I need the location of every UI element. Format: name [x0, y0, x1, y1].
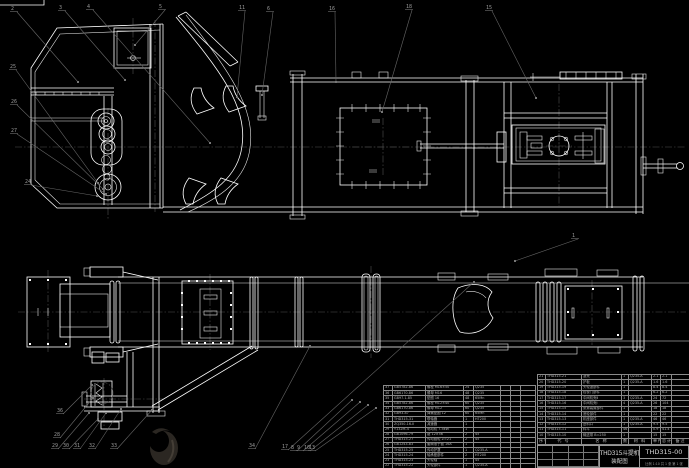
svg-text:8: 8: [291, 445, 294, 451]
svg-text:26: 26: [11, 99, 17, 105]
svg-text:33: 33: [111, 443, 117, 449]
bom-table-standard-parts: 37GB5782-86螺栓 M16×5024Q23536GB6170-86螺母 …: [383, 385, 536, 468]
svg-text:18: 18: [406, 4, 412, 10]
tension-bolt: [256, 86, 268, 120]
title-block: THD315斗提机 装配图 THD315-00 比例 1:10 共 1 张 第 …: [537, 445, 689, 468]
svg-text:30: 30: [63, 443, 69, 449]
inspection-door-plan: [182, 281, 233, 344]
svg-text:11: 11: [239, 5, 245, 11]
svg-text:27: 27: [11, 128, 17, 134]
svg-text:25: 25: [10, 64, 16, 70]
watermark-blob: [149, 428, 178, 465]
frame-corner: [0, 0, 44, 5]
svg-text:6: 6: [267, 6, 270, 12]
signature-grid: [538, 446, 600, 467]
svg-text:28: 28: [54, 432, 60, 438]
buckets: [183, 86, 246, 204]
drive-unit-plan: [82, 352, 160, 429]
svg-text:32: 32: [89, 443, 95, 449]
svg-text:17: 17: [282, 444, 288, 450]
sheet-info: 比例 1:10 共 1 张 第 1 张: [640, 459, 688, 467]
head-section: [31, 12, 268, 212]
drawing-number-cell: THD315-00 比例 1:10 共 1 张 第 1 张: [640, 446, 688, 467]
doc-type: 装配图: [611, 457, 628, 465]
cad-viewport: 2345116161815252627241362829303132333417…: [0, 0, 689, 468]
svg-text:2: 2: [11, 6, 14, 12]
svg-text:5: 5: [159, 4, 162, 10]
svg-text:15: 15: [486, 5, 492, 11]
head-hatch: [114, 28, 151, 68]
svg-text:16: 16: [329, 6, 335, 12]
drawing-number: THD315-00: [640, 446, 688, 459]
svg-text:24: 24: [25, 179, 31, 185]
svg-text:4: 4: [87, 4, 90, 10]
svg-text:34: 34: [249, 443, 255, 449]
svg-text:9: 9: [297, 445, 300, 451]
front-elevation-view: [15, 12, 686, 220]
takeup-section: [417, 72, 684, 214]
svg-text:3: 3: [59, 5, 62, 11]
svg-text:36: 36: [57, 408, 63, 414]
bom-table-assembly-parts: 21THD315-21罩壳1Q235-A2.12.120THD315-20护板1…: [537, 374, 689, 445]
svg-text:29: 29: [52, 443, 58, 449]
title-cell: THD315斗提机 装配图: [600, 446, 640, 467]
svg-text:31: 31: [74, 443, 80, 449]
chain-drive: [91, 109, 122, 200]
svg-text:1: 1: [572, 233, 575, 239]
product-name: THD315斗提机: [600, 448, 639, 457]
svg-text:13: 13: [309, 445, 315, 451]
